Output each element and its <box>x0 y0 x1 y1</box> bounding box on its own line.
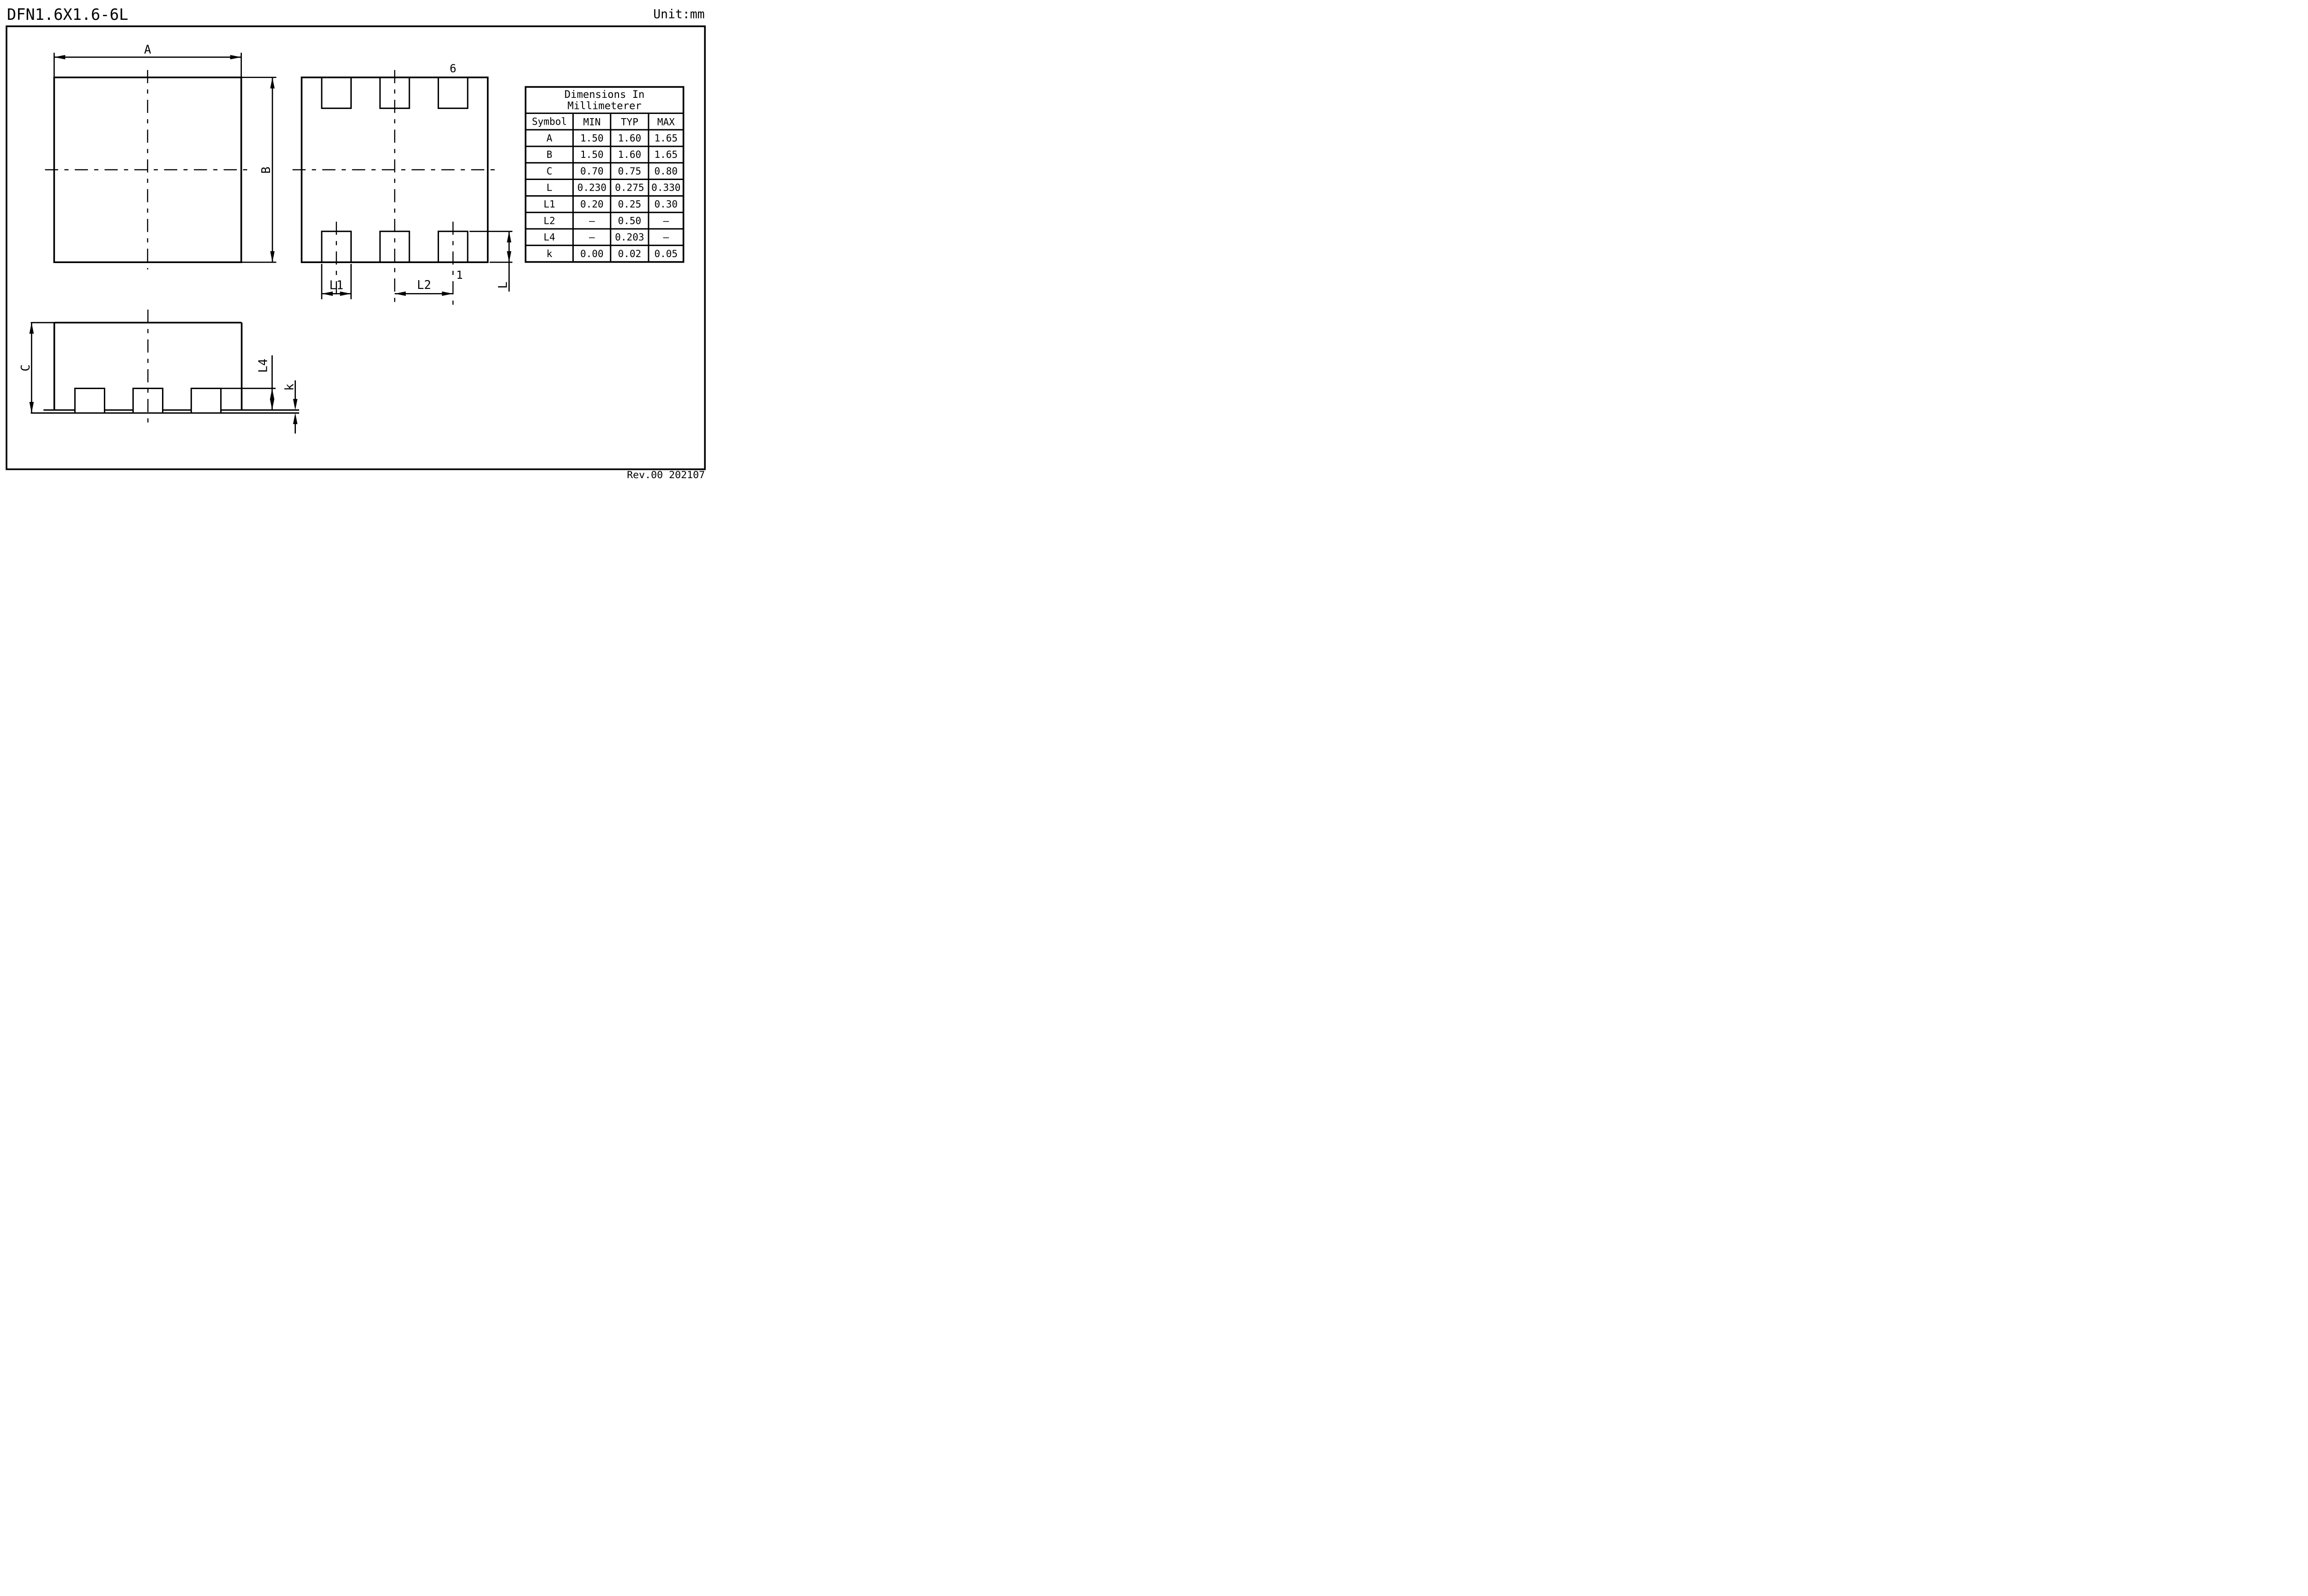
bottom-view: 6 1 L1 L2 L <box>293 62 512 311</box>
arrowhead-right <box>442 292 453 296</box>
cell-typ: 0.25 <box>618 198 642 210</box>
page-title: DFN1.6X1.6-6L <box>7 6 128 24</box>
cell-max: – <box>663 232 669 243</box>
dim-k: k <box>282 380 297 433</box>
pad <box>191 389 221 413</box>
cell-min: – <box>589 215 595 226</box>
arrowhead-down <box>293 399 298 410</box>
dim-l2: L2 <box>395 278 453 296</box>
cell-max: 0.05 <box>655 248 678 259</box>
dim-k-label: k <box>282 384 296 390</box>
arrowhead-left <box>54 55 65 60</box>
dim-a-label: A <box>144 43 151 57</box>
table-title-line2: Millimeterer <box>567 100 641 112</box>
pad <box>439 78 468 108</box>
arrowhead-up <box>507 231 511 242</box>
col-header-min: MIN <box>583 116 601 127</box>
cell-typ: 0.75 <box>618 166 642 177</box>
cell-max: 1.65 <box>655 132 678 144</box>
side-view: C L4 k <box>19 310 299 434</box>
arrowhead-up <box>30 323 34 334</box>
table-row: L4 – 0.203 – <box>544 232 669 243</box>
cell-max: 0.330 <box>651 182 680 193</box>
cell-typ: 0.02 <box>618 248 642 259</box>
pad <box>75 389 104 413</box>
cell-min: 1.50 <box>580 149 604 160</box>
col-header-symbol: Symbol <box>532 116 567 127</box>
cell-max: – <box>663 215 669 226</box>
table-row: L 0.230 0.275 0.330 <box>547 182 681 193</box>
cell-typ: 0.50 <box>618 215 642 226</box>
pin-1-label: 1 <box>456 269 463 282</box>
cell-min: 1.50 <box>580 132 604 144</box>
arrowhead-up <box>293 413 298 424</box>
cell-min: 0.00 <box>580 248 604 259</box>
table-header-row: Symbol MIN TYP MAX <box>532 116 675 127</box>
cell-typ: 0.275 <box>615 182 644 193</box>
arrowhead-down <box>270 399 275 410</box>
cell-symbol: L2 <box>544 215 555 226</box>
dim-l2-label: L2 <box>417 278 431 292</box>
cell-typ: 0.203 <box>615 232 644 243</box>
cell-min: 0.230 <box>577 182 607 193</box>
arrowhead-down <box>270 251 275 262</box>
arrowhead-up <box>270 78 275 89</box>
arrowhead-up <box>270 389 275 400</box>
cell-min: – <box>589 232 595 243</box>
cell-min: 0.70 <box>580 166 604 177</box>
unit-label: Unit:mm <box>653 7 704 21</box>
dim-c-label: C <box>19 364 33 371</box>
datasheet-page: DFN1.6X1.6-6L Unit:mm Rev.00 202107 A B <box>0 0 711 479</box>
package-outline-drawing: DFN1.6X1.6-6L Unit:mm Rev.00 202107 A B <box>0 0 711 479</box>
dim-l1: L1 <box>322 264 351 300</box>
cell-max: 0.80 <box>655 166 678 177</box>
revision-label: Rev.00 202107 <box>627 469 705 479</box>
table-row: A 1.50 1.60 1.65 <box>547 132 678 144</box>
table-row: L2 – 0.50 – <box>544 215 669 226</box>
cell-symbol: k <box>547 248 553 259</box>
table-row: B 1.50 1.60 1.65 <box>547 149 678 160</box>
cell-min: 0.20 <box>580 198 604 210</box>
cell-typ: 1.60 <box>618 149 642 160</box>
dim-l4: L4 <box>221 355 276 410</box>
dim-l4-label: L4 <box>256 359 270 373</box>
cell-max: 0.30 <box>655 198 678 210</box>
arrowhead-down <box>507 251 511 262</box>
cell-max: 1.65 <box>655 149 678 160</box>
cell-symbol: B <box>547 149 553 160</box>
col-header-typ: TYP <box>621 116 638 127</box>
cell-symbol: C <box>547 166 553 177</box>
dim-b-label: B <box>259 167 273 174</box>
cell-symbol: L1 <box>544 198 555 210</box>
col-header-max: MAX <box>657 116 675 127</box>
dim-l-label: L <box>496 282 510 288</box>
cell-symbol: L <box>547 182 553 193</box>
table-title-line1: Dimensions In <box>565 89 645 101</box>
arrowhead-right <box>230 55 241 60</box>
dim-c: C <box>19 323 34 413</box>
dimensions-table: Dimensions In Millimeterer Symbol MIN TY… <box>526 87 684 262</box>
table-row: C 0.70 0.75 0.80 <box>547 166 678 177</box>
table-row: k 0.00 0.02 0.05 <box>547 248 678 259</box>
dim-l1-label: L1 <box>329 279 343 293</box>
cell-symbol: A <box>547 132 553 144</box>
pin-6-label: 6 <box>450 62 456 75</box>
arrowhead-down <box>30 402 34 413</box>
cell-symbol: L4 <box>544 232 555 243</box>
arrowhead-left <box>395 292 406 296</box>
top-view: A B <box>45 43 276 270</box>
pad <box>322 78 351 108</box>
cell-typ: 1.60 <box>618 132 642 144</box>
